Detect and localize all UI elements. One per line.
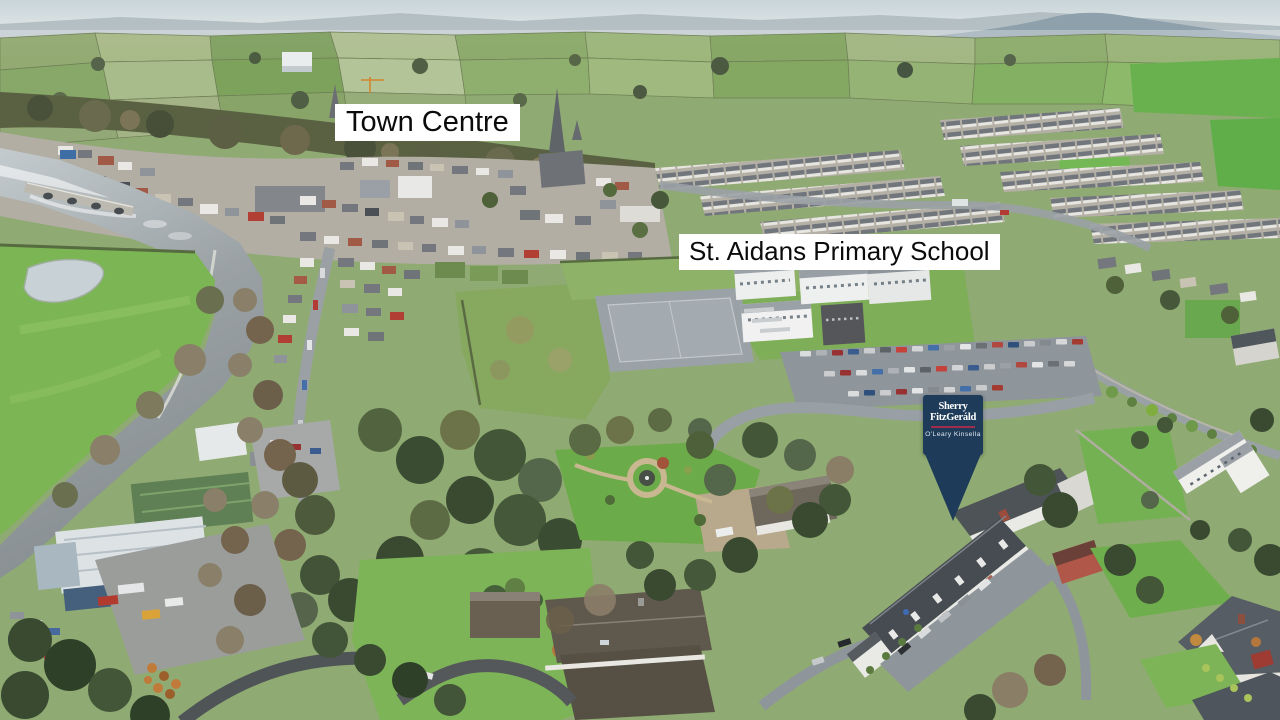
- blue-roof-building: [60, 150, 76, 159]
- location-pin: Sherry FitzGeráld O'Leary Kinsella: [923, 395, 983, 521]
- rough-pasture: [455, 282, 610, 420]
- cathedral: [539, 88, 586, 188]
- location-pin-box: Sherry FitzGeráld O'Leary Kinsella: [923, 395, 983, 455]
- school-label: St. Aidans Primary School: [679, 234, 1000, 270]
- aerial-photo: Town Centre St. Aidans Primary School Sh…: [0, 0, 1280, 720]
- agency-name: O'Leary Kinsella: [925, 431, 981, 438]
- riverside-buildings: [274, 258, 420, 363]
- aerial-scene: [0, 0, 1280, 720]
- town-centre-label: Town Centre: [335, 104, 520, 141]
- brand-name-line1: Sherry: [938, 402, 967, 413]
- brand-name-line2: FitzGeráld: [930, 413, 976, 424]
- dark-block: [821, 303, 866, 346]
- white-house-right: [1076, 408, 1274, 540]
- digger: [142, 609, 161, 620]
- brand-divider: [931, 426, 975, 428]
- blue-bin: [903, 609, 909, 615]
- pin-pointer-icon: [925, 454, 981, 521]
- basketball-courts: [595, 288, 754, 372]
